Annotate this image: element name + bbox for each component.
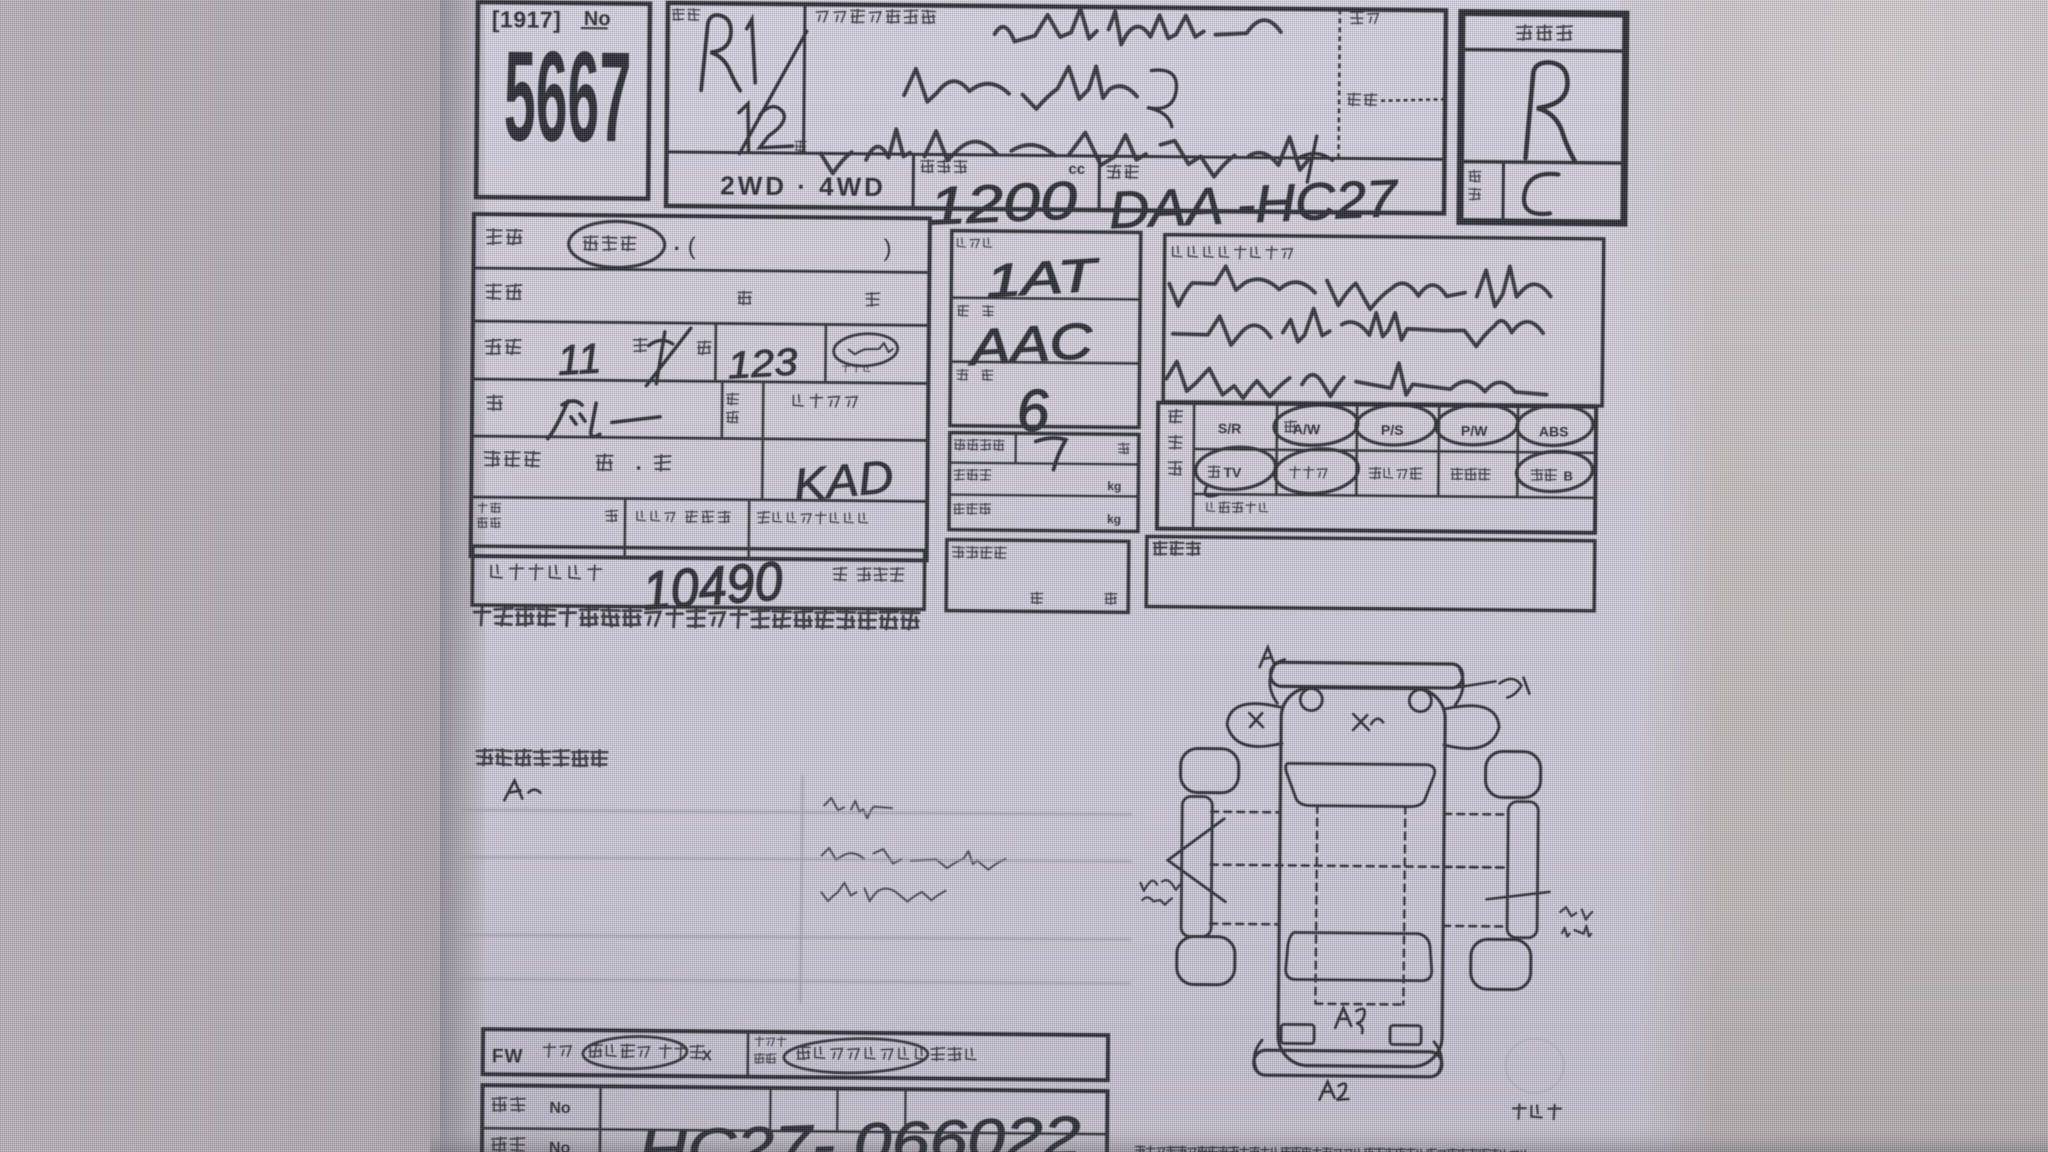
svg-text:No: No [549, 1140, 571, 1152]
svg-text:(: ( [688, 233, 696, 260]
svg-text:2WD · 4WD: 2WD · 4WD [720, 170, 886, 202]
svg-text:P/S: P/S [1381, 422, 1404, 438]
svg-text:P/W: P/W [1461, 423, 1488, 439]
svg-text:·: · [635, 456, 643, 481]
svg-text:No: No [549, 1100, 571, 1117]
svg-text:X: X [702, 1047, 712, 1064]
svg-text:): ) [884, 235, 892, 262]
svg-text:TV: TV [1223, 464, 1242, 480]
svg-text:DAA -HC27: DAA -HC27 [1108, 170, 1400, 240]
svg-text:1AT: 1AT [985, 248, 1102, 307]
svg-text:B: B [1563, 469, 1573, 484]
svg-text:5667: 5667 [503, 25, 631, 169]
svg-text:11: 11 [556, 334, 602, 384]
svg-text:FW: FW [492, 1046, 524, 1067]
svg-text:S/R: S/R [1218, 420, 1241, 436]
svg-text:kg: kg [1107, 479, 1121, 493]
svg-text:KAD: KAD [791, 450, 895, 511]
svg-text:A/W: A/W [1293, 421, 1321, 437]
svg-text:ABS: ABS [1539, 423, 1569, 439]
svg-text:kg: kg [1107, 512, 1121, 526]
svg-text:123: 123 [726, 341, 798, 387]
svg-text:AAC: AAC [965, 313, 1095, 377]
svg-text:1200: 1200 [928, 171, 1079, 236]
svg-text:·: · [674, 236, 682, 261]
